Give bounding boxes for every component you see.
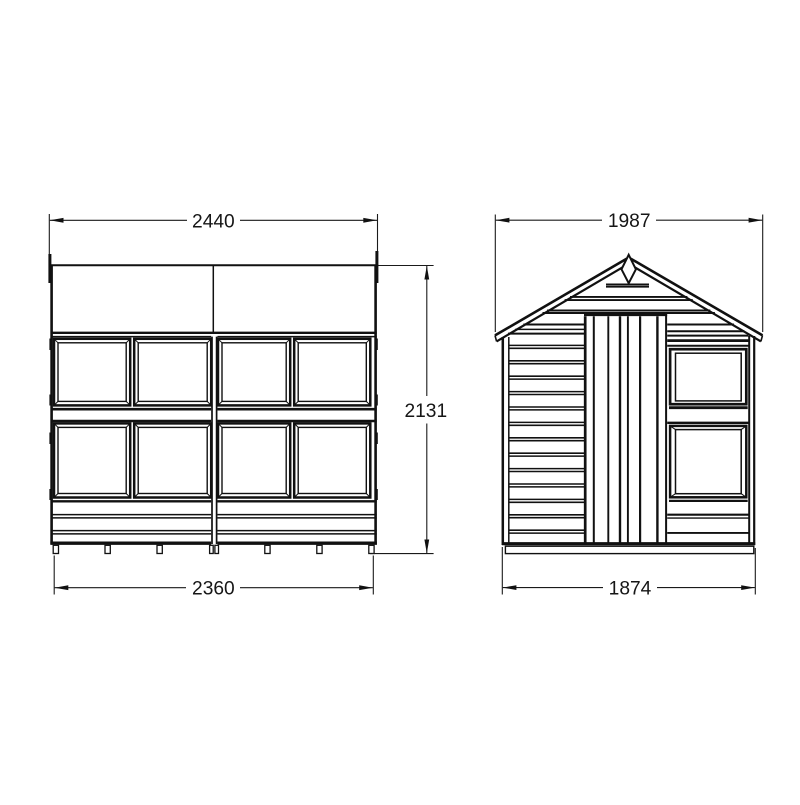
svg-text:1874: 1874 (609, 579, 652, 600)
svg-text:2360: 2360 (192, 579, 235, 600)
svg-text:1987: 1987 (608, 211, 651, 232)
svg-text:2131: 2131 (404, 401, 447, 422)
svg-text:2440: 2440 (192, 211, 235, 232)
